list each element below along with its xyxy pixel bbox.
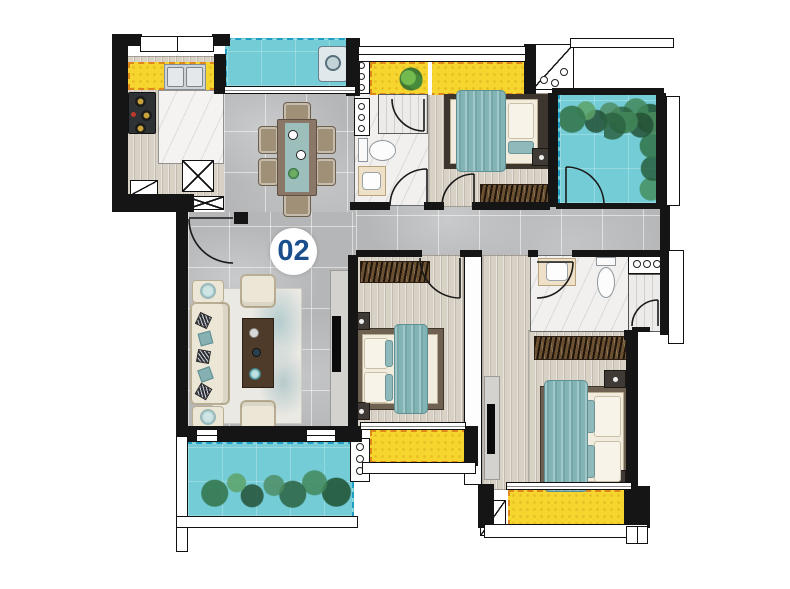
master-balcony — [508, 490, 630, 526]
dining-chair-left2 — [258, 158, 279, 186]
dining-plate — [288, 130, 298, 140]
master-tv-icon — [487, 404, 495, 454]
ac-pipe-hole — [551, 79, 559, 87]
sw-balcony-rail-left — [176, 436, 188, 552]
master-pillow-2 — [594, 441, 621, 482]
bedroom2-accent-pillow — [508, 141, 534, 154]
kitchen-sink-basin-left — [167, 67, 184, 87]
wall — [234, 212, 248, 224]
wall — [656, 93, 666, 209]
plants-northeast-balcony-right — [604, 112, 660, 206]
shower1-floor — [378, 94, 428, 134]
wall — [548, 93, 558, 207]
bedroom2-blanket — [456, 90, 506, 172]
master-balcony-rail — [484, 524, 648, 538]
wall — [356, 250, 422, 257]
dining-chair-right2 — [315, 158, 336, 186]
dining-chair-bottom — [283, 193, 311, 217]
wall — [528, 250, 538, 257]
living-south-window — [306, 429, 336, 442]
bedroom3-accent-pillow-1 — [385, 340, 393, 367]
wall — [428, 202, 444, 210]
wall — [348, 255, 358, 429]
stove-burner-1 — [135, 96, 146, 107]
master-blanket — [544, 380, 588, 492]
cabinet-knob — [643, 260, 651, 268]
cabinet-knob — [358, 125, 365, 132]
side-table-bottom-plate — [200, 409, 216, 425]
wall — [472, 202, 550, 210]
drain-pipe-box — [626, 526, 648, 544]
ne-parapet-top — [570, 38, 674, 48]
toilet2-bowl — [597, 267, 615, 298]
unit-number-badge: 02 — [270, 228, 317, 275]
sw-balcony-rail-bottom — [176, 516, 358, 528]
dining-chair-left1 — [258, 126, 279, 154]
coffee-table-decor-1 — [249, 328, 259, 338]
bedroom3-accent-pillow-2 — [385, 374, 393, 401]
master-pillow-1 — [594, 396, 621, 437]
living-south-window — [196, 429, 218, 442]
bedroom3-blanket — [394, 324, 428, 414]
wall — [176, 206, 188, 430]
master-slider — [506, 482, 632, 490]
balcony-slider — [224, 86, 356, 94]
north-window — [358, 46, 526, 62]
bedroom3-balcony — [370, 430, 468, 463]
plants-southwest-balcony — [196, 462, 352, 514]
toilet-icon — [369, 140, 396, 161]
wall — [112, 34, 128, 206]
ac-pipe-hole — [540, 76, 548, 84]
unit-number-label: 02 — [277, 235, 309, 268]
wall — [624, 486, 650, 528]
stove-burner-3 — [135, 123, 146, 134]
east-ledge — [668, 250, 684, 344]
coffee-table-decor-2 — [252, 348, 261, 357]
bonus-strip-divider — [428, 62, 432, 95]
washing-machine-drum — [325, 55, 341, 71]
dining-plate — [296, 150, 306, 160]
wall — [212, 34, 230, 46]
master-nightstand-top — [604, 370, 626, 388]
bedroom2-pillow — [508, 103, 534, 139]
kitchen-island-floor — [158, 90, 224, 164]
bedroom3-slider — [360, 422, 466, 430]
wall — [350, 202, 390, 210]
wall — [478, 484, 494, 528]
cabinet-knob — [358, 114, 365, 121]
cabinet-knob — [358, 103, 365, 110]
cabinet-knob — [633, 260, 641, 268]
dining-centerpiece — [288, 168, 299, 179]
bedroom3-balcony-rail — [362, 462, 476, 474]
sofa-pillow-striped — [196, 349, 211, 364]
toilet2-tank — [596, 257, 616, 266]
kitchen-window — [140, 36, 214, 52]
wall — [556, 203, 660, 209]
stove-knob — [131, 112, 136, 117]
wall — [626, 334, 638, 492]
sink-icon — [362, 172, 381, 190]
tv-icon — [332, 316, 341, 372]
side-table-top-plate — [200, 283, 216, 299]
wall — [660, 255, 668, 335]
dining-chair-right1 — [315, 126, 336, 154]
armchair-top — [240, 274, 276, 308]
plant-icon — [398, 66, 424, 92]
floor-plan: 02 — [0, 0, 790, 589]
master-wardrobe-icon — [534, 336, 628, 360]
toilet1-tank — [358, 138, 368, 162]
bonus-strip-north — [370, 62, 532, 95]
wall — [572, 250, 664, 257]
ac-pipe-hole — [560, 68, 568, 76]
ne-parapet-side — [666, 96, 680, 206]
bedroom3-wardrobe-icon — [360, 261, 430, 283]
stove-burner-2 — [141, 110, 152, 121]
wall — [552, 88, 664, 95]
duct-x-icon — [182, 160, 214, 192]
wall — [460, 250, 482, 257]
cabinet-knob — [356, 443, 364, 451]
bathroom2-sink — [546, 262, 568, 281]
wall — [464, 426, 478, 466]
coffee-table-decor-3 — [249, 368, 261, 380]
kitchen-sink-basin-right — [186, 67, 203, 87]
